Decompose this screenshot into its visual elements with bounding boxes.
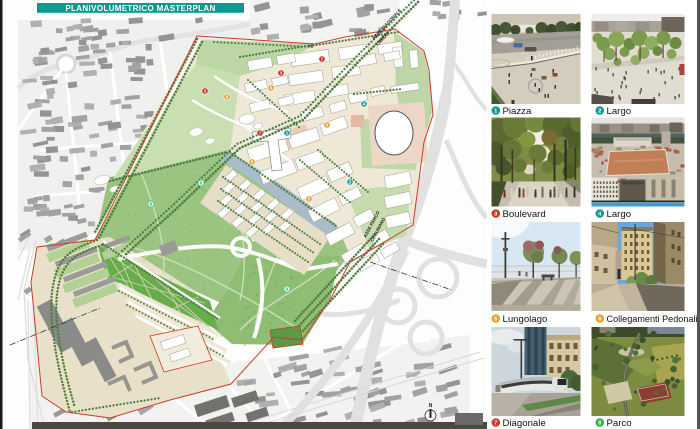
- svg-text:Piazza: Piazza: [503, 106, 532, 117]
- svg-text:Parco: Parco: [607, 418, 632, 429]
- svg-text:Largo: Largo: [607, 106, 632, 117]
- svg-text:2: 2: [598, 109, 601, 115]
- svg-text:Lungolago: Lungolago: [503, 314, 548, 325]
- svg-text:PLANIVOLUMETRICO MASTERPLAN: PLANIVOLUMETRICO MASTERPLAN: [65, 4, 215, 13]
- svg-text:N: N: [429, 403, 433, 409]
- svg-text:7: 7: [494, 421, 497, 427]
- svg-text:Largo: Largo: [607, 209, 632, 220]
- svg-text:Diagonale: Diagonale: [503, 418, 546, 429]
- svg-text:Collegamenti Pedonali: Collegamenti Pedonali: [607, 314, 698, 325]
- svg-text:Boulevard: Boulevard: [503, 209, 546, 220]
